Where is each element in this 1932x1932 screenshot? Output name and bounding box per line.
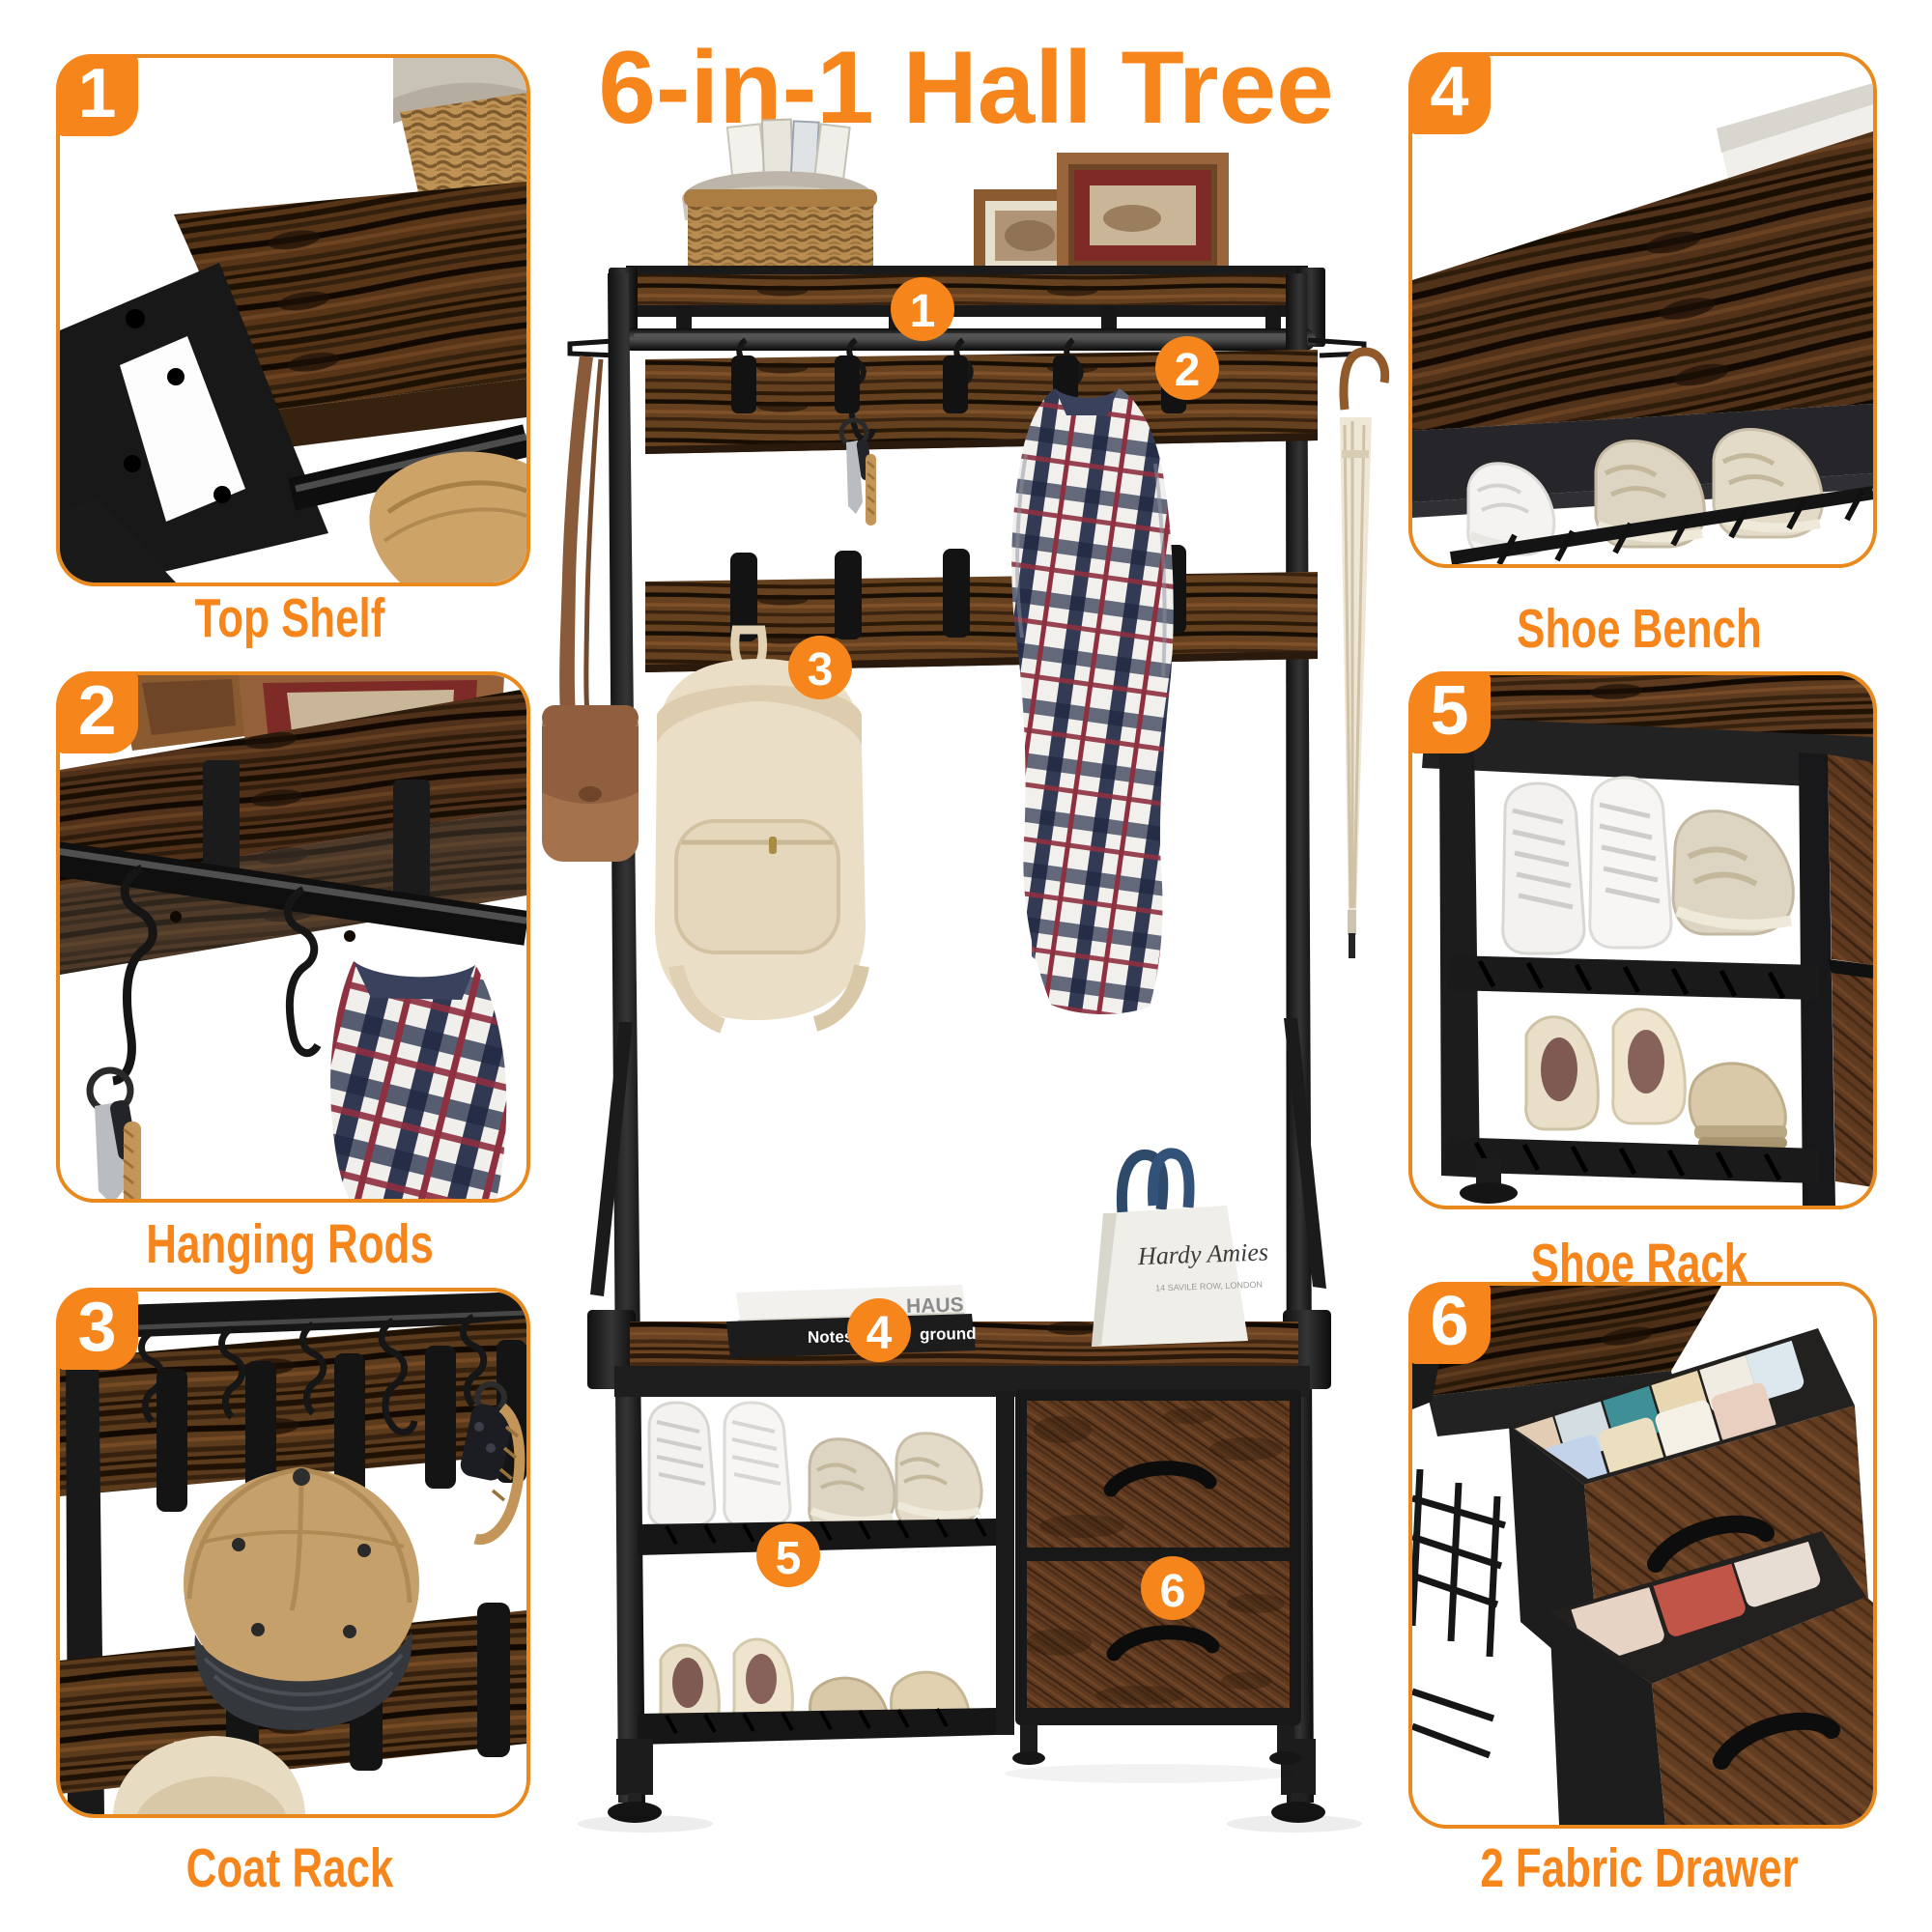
svg-text:Notes: Notes	[808, 1327, 854, 1347]
svg-text:5: 5	[776, 1533, 802, 1584]
svg-text:Hardy Amies: Hardy Amies	[1136, 1237, 1268, 1270]
svg-text:2: 2	[1175, 345, 1201, 396]
svg-text:1: 1	[910, 286, 936, 337]
svg-text:HAUS: HAUS	[906, 1293, 964, 1318]
svg-text:6: 6	[1160, 1566, 1186, 1617]
svg-text:3: 3	[808, 644, 834, 696]
svg-text:4: 4	[867, 1308, 893, 1359]
svg-text:ground: ground	[920, 1324, 977, 1344]
